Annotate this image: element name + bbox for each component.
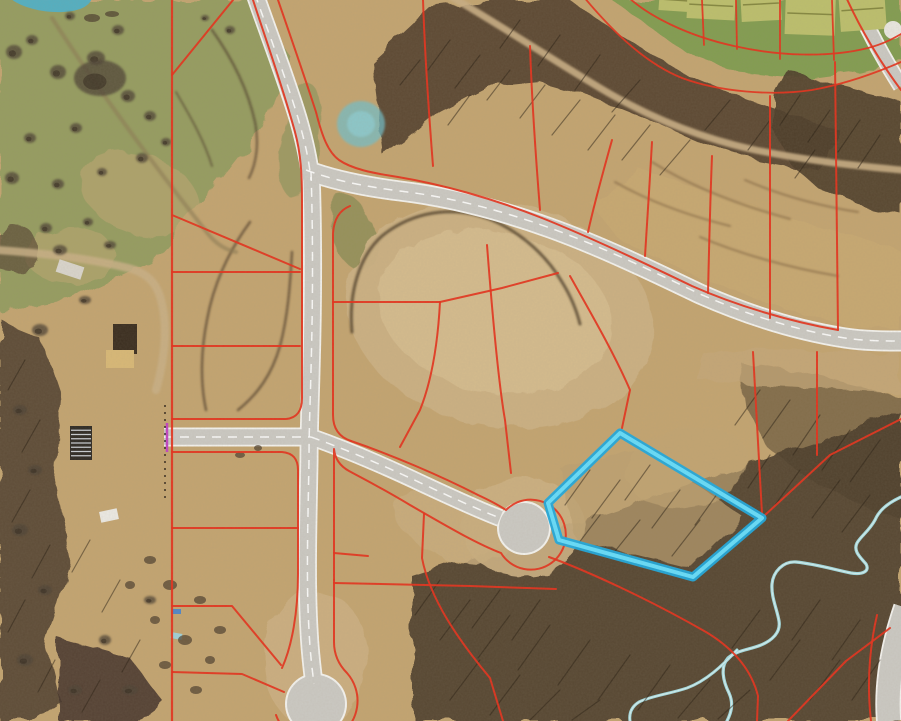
parcel-map-viewport <box>0 0 901 721</box>
photo-grain <box>0 0 901 721</box>
grain-overlay <box>0 0 901 721</box>
aerial-parcel-map <box>0 0 901 721</box>
